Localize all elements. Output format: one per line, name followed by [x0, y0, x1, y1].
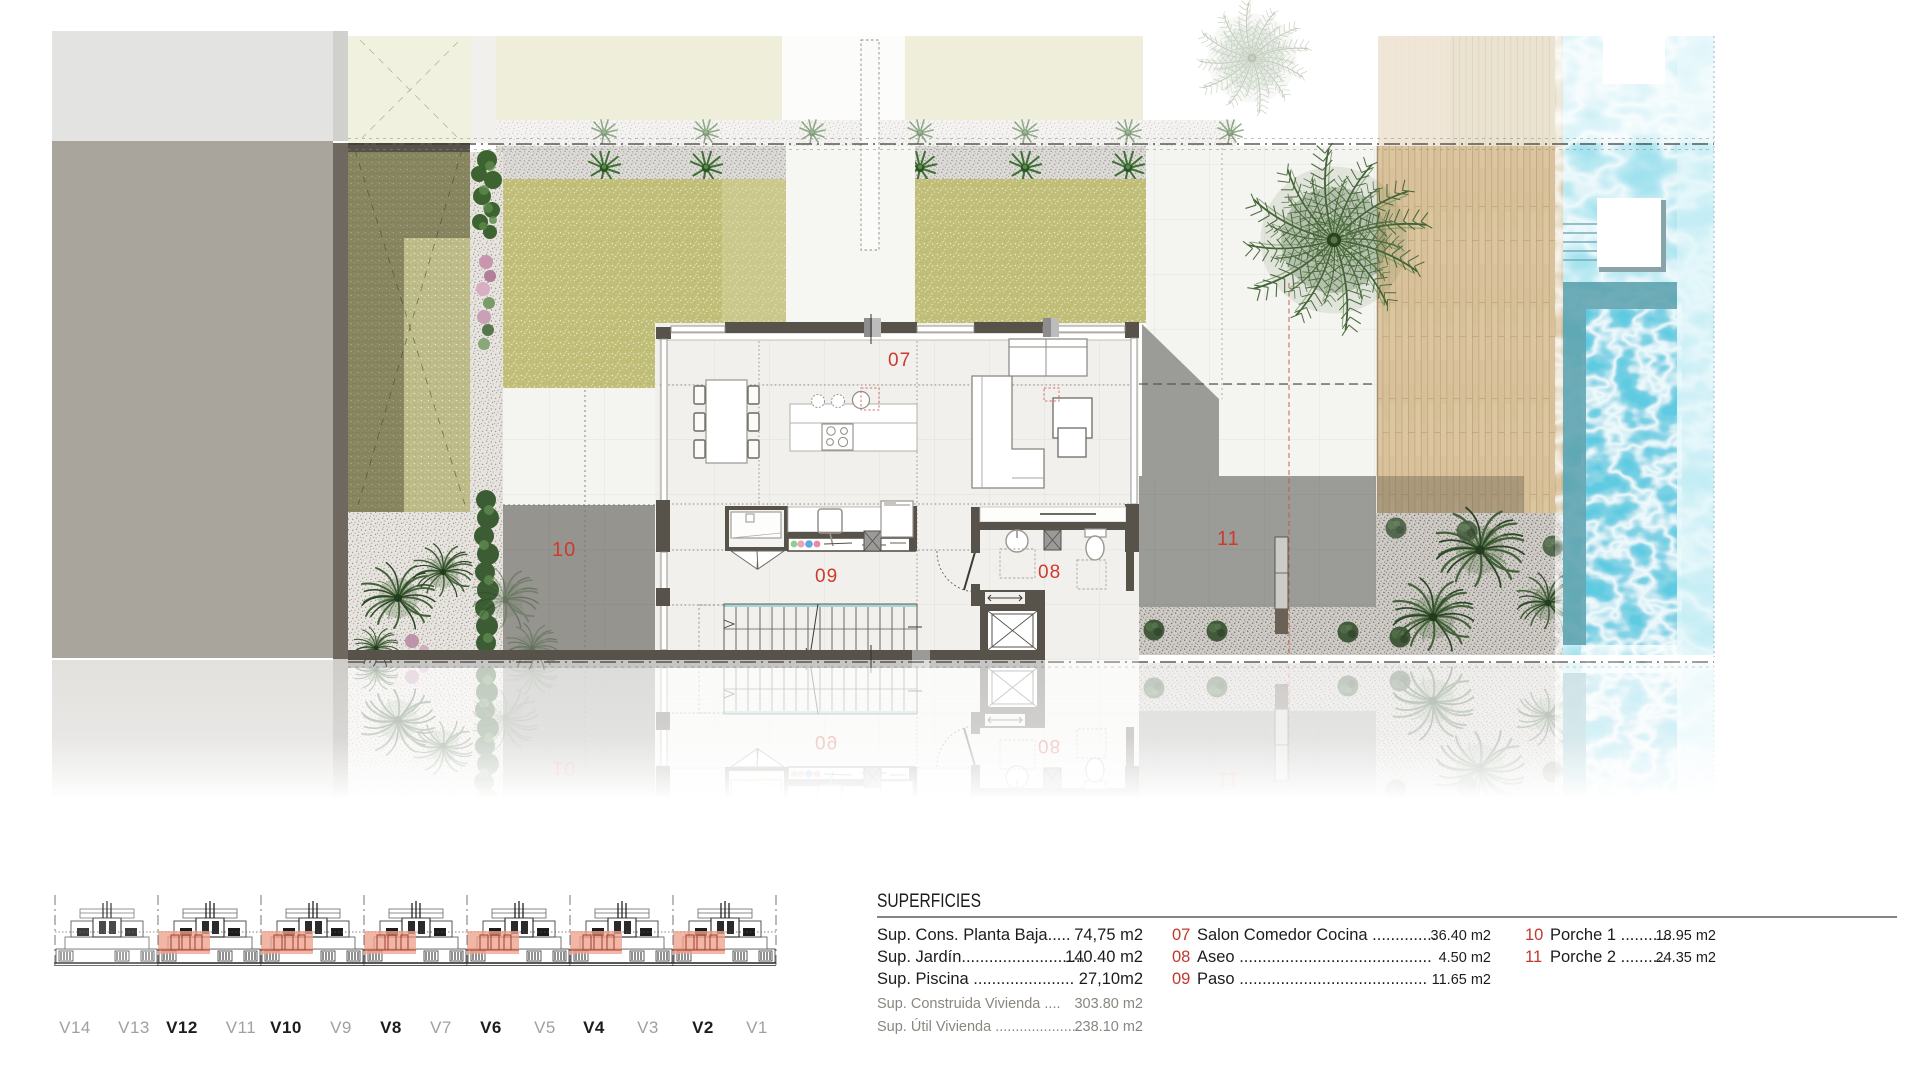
svg-text:V5: V5: [534, 1018, 556, 1037]
svg-text:V7: V7: [430, 1018, 452, 1037]
svg-text:09: 09: [1172, 970, 1190, 988]
svg-text:11: 11: [1525, 948, 1542, 966]
svg-text:V14: V14: [59, 1018, 91, 1037]
svg-text:74,75 m2: 74,75 m2: [1074, 926, 1143, 944]
svg-text:Porche 1 ...........: Porche 1 ...........: [1550, 926, 1671, 944]
svg-text:11: 11: [1217, 528, 1240, 550]
svg-text:08: 08: [1172, 948, 1190, 966]
svg-text:Sup. Útil Vivienda ...........: Sup. Útil Vivienda .....................: [877, 1018, 1080, 1035]
svg-text:V9: V9: [330, 1018, 352, 1037]
svg-text:V6: V6: [480, 1018, 502, 1037]
svg-text:140.40 m2: 140.40 m2: [1065, 948, 1143, 966]
svg-text:V11: V11: [226, 1018, 257, 1037]
svg-text:Sup. Jardín...................: Sup. Jardín...........................: [877, 948, 1085, 966]
svg-text:27,10m2: 27,10m2: [1079, 970, 1143, 988]
svg-text:Paso .........................: Paso ...................................…: [1197, 970, 1427, 988]
svg-text:Sup. Construida Vivienda ....: Sup. Construida Vivienda ....: [877, 996, 1061, 1012]
svg-text:07: 07: [1172, 926, 1190, 944]
svg-text:09: 09: [815, 566, 838, 587]
svg-text:V4: V4: [583, 1018, 605, 1037]
svg-text:10: 10: [552, 539, 576, 561]
svg-text:Porche 2 ..........: Porche 2 ..........: [1550, 948, 1666, 966]
svg-text:36.40 m2: 36.40 m2: [1431, 928, 1491, 944]
svg-text:18.95 m2: 18.95 m2: [1656, 928, 1716, 944]
svg-text:V3: V3: [637, 1018, 659, 1037]
svg-text:10: 10: [1525, 926, 1543, 944]
svg-text:07: 07: [888, 350, 911, 371]
svg-text:V13: V13: [118, 1018, 150, 1037]
svg-text:SUPERFICIES: SUPERFICIES: [877, 891, 981, 912]
svg-text:11.65 m2: 11.65 m2: [1432, 972, 1491, 988]
svg-text:Aseo .........................: Aseo ...................................…: [1197, 948, 1432, 966]
svg-text:238.10 m2: 238.10 m2: [1074, 1019, 1143, 1035]
svg-text:24.35 m2: 24.35 m2: [1656, 950, 1716, 966]
svg-text:4.50 m2: 4.50 m2: [1439, 950, 1491, 966]
svg-text:V8: V8: [380, 1018, 402, 1037]
svg-text:V1: V1: [746, 1018, 768, 1037]
svg-text:V10: V10: [270, 1018, 302, 1037]
svg-text:V2: V2: [692, 1018, 714, 1037]
svg-text:V12: V12: [166, 1018, 198, 1037]
svg-text:303.80 m2: 303.80 m2: [1074, 996, 1143, 1012]
svg-text:Salon Comedor Cocina .........: Salon Comedor Cocina ..............: [1197, 926, 1436, 944]
svg-text:Sup. Piscina ................: Sup. Piscina ......................: [877, 970, 1074, 988]
svg-text:08: 08: [1038, 562, 1061, 583]
svg-text:Sup. Cons. Planta Baja.....: Sup. Cons. Planta Baja.....: [877, 926, 1071, 944]
